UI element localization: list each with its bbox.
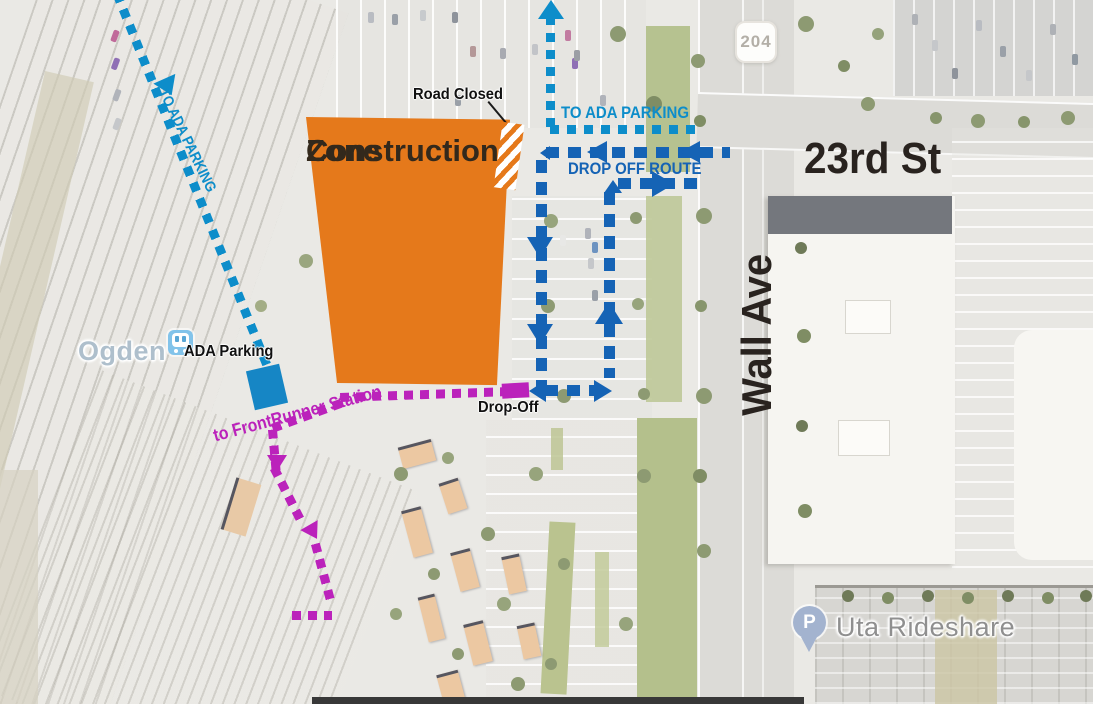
rideshare-lot-ground bbox=[935, 590, 997, 704]
drop-off-route-up-arrow-icon bbox=[595, 302, 623, 324]
route-204-shield: 204 bbox=[735, 21, 777, 63]
map-canvas: Ogden 204 Uta Rideshare P 23rd St Wall A… bbox=[0, 0, 1093, 704]
transit-icon-window bbox=[175, 336, 179, 342]
parking-pin-tail bbox=[801, 637, 817, 652]
grass-wedge bbox=[595, 552, 609, 647]
construction-zone-label-line2: Zone bbox=[306, 134, 380, 169]
city-label: Ogden bbox=[78, 336, 166, 367]
drop-off-route-right-arrow-icon bbox=[594, 380, 612, 402]
frontrunner-route-bottom bbox=[292, 611, 332, 620]
grass-strip-south bbox=[637, 418, 697, 704]
grass-wedge bbox=[551, 428, 563, 470]
street-label-wall-ave: Wall Ave bbox=[734, 325, 780, 515]
ada-parking-marker bbox=[246, 364, 288, 411]
frontrunner-route-label-text: to FrontRunner Station bbox=[211, 381, 384, 446]
ada-route-north-horizontal bbox=[550, 125, 700, 134]
drop-off-marker bbox=[502, 382, 530, 398]
ada-route-up-arrow-icon bbox=[538, 0, 564, 19]
large-building-roof-edge bbox=[768, 196, 952, 234]
transit-icon-light bbox=[174, 349, 178, 353]
rideshare-label: Uta Rideshare bbox=[836, 612, 1015, 643]
parking-pin-icon: P bbox=[793, 606, 826, 639]
drop-off-route-label-text: DROP OFF ROUTE bbox=[568, 159, 702, 179]
transit-icon-window bbox=[182, 336, 186, 342]
rooftop-unit bbox=[838, 420, 890, 456]
bus-shelter bbox=[401, 506, 433, 558]
grass-strip-mid bbox=[646, 196, 682, 402]
ada-route-top-label-text: TO ADA PARKING bbox=[561, 103, 689, 123]
drop-off-route-descent bbox=[536, 160, 547, 390]
bottom-edge-bar bbox=[312, 697, 804, 704]
ada-route-north-vertical bbox=[546, 16, 555, 131]
west-vegetation-strip-2 bbox=[0, 470, 38, 704]
street-label-23rd-st-text: 23rd St bbox=[804, 134, 941, 184]
east-building bbox=[1014, 330, 1093, 560]
bus-shelter bbox=[450, 548, 480, 592]
parked-cars bbox=[0, 0, 6, 11]
parking-lot-northeast bbox=[893, 0, 1093, 96]
drop-off-route-left-arrowhead-icon bbox=[540, 146, 550, 160]
drop-off-route-down-arrow-icon bbox=[527, 324, 553, 345]
drop-off-route-entry bbox=[546, 147, 730, 158]
drop-off-route-return bbox=[604, 192, 615, 378]
drop-off-label-text: Drop-Off bbox=[478, 399, 539, 417]
bus-shelter bbox=[439, 478, 468, 515]
drop-off-route-bottom bbox=[545, 385, 597, 396]
rooftop-unit bbox=[845, 300, 891, 334]
bus-shelter bbox=[418, 594, 446, 643]
ada-parking-label-text: ADA Parking bbox=[184, 343, 273, 361]
drop-off-route-down-arrow-icon bbox=[527, 237, 553, 258]
bus-shelter bbox=[398, 439, 437, 469]
large-building bbox=[768, 196, 955, 564]
street-label-wall-ave-text: Wall Ave bbox=[734, 254, 780, 416]
